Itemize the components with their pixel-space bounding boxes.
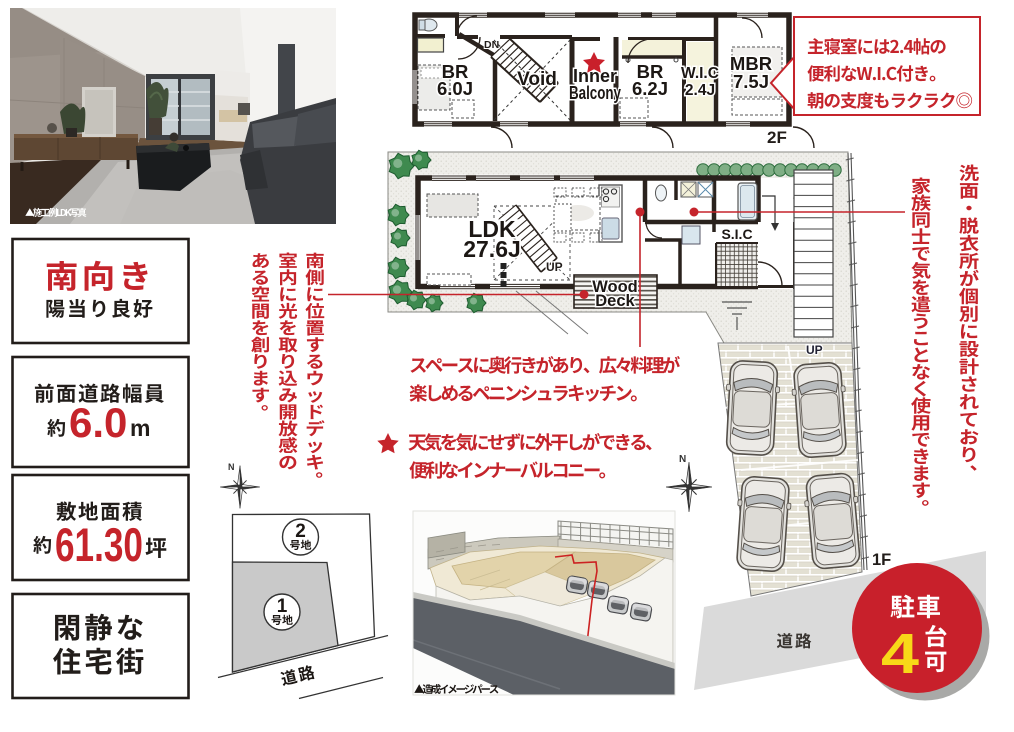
svg-text:1F: 1F — [872, 551, 891, 569]
svg-text:N: N — [228, 462, 235, 472]
svg-text:UP: UP — [806, 343, 823, 357]
svg-text:27.6J: 27.6J — [463, 236, 521, 262]
svg-text:2.4J: 2.4J — [685, 82, 715, 99]
svg-text:Deck: Deck — [595, 292, 635, 310]
svg-text:4: 4 — [881, 622, 919, 686]
svg-text:W.I.C: W.I.C — [681, 65, 719, 82]
svg-text:6.0: 6.0 — [69, 399, 127, 446]
svg-text:1: 1 — [277, 596, 288, 617]
svg-text:2F: 2F — [767, 128, 787, 147]
svg-text:7.5J: 7.5J — [733, 71, 769, 92]
svg-text:m: m — [130, 415, 150, 441]
svg-text:2: 2 — [295, 521, 306, 542]
svg-text:UP: UP — [546, 260, 563, 274]
svg-text:S.I.C: S.I.C — [721, 226, 752, 242]
svg-text:N: N — [679, 454, 686, 465]
svg-text:6.0J: 6.0J — [437, 78, 473, 99]
svg-text:6.2J: 6.2J — [632, 78, 668, 99]
svg-text:Balcony: Balcony — [569, 83, 621, 103]
svg-text:61.30: 61.30 — [55, 518, 143, 571]
svg-text:Void: Void — [517, 69, 557, 90]
svg-text:DN: DN — [484, 39, 499, 51]
